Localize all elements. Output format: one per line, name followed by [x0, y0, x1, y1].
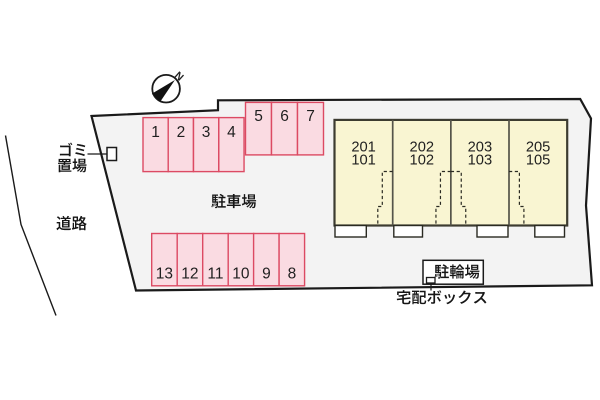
svg-text:105: 105 [526, 152, 551, 168]
svg-text:103: 103 [468, 152, 493, 168]
svg-text:102: 102 [410, 152, 435, 168]
svg-text:6: 6 [280, 108, 289, 125]
svg-text:10: 10 [232, 265, 250, 282]
svg-text:13: 13 [156, 265, 173, 282]
svg-text:2: 2 [177, 124, 186, 141]
svg-text:11: 11 [207, 265, 223, 282]
svg-text:9: 9 [262, 265, 271, 282]
svg-text:4: 4 [227, 124, 236, 141]
svg-text:7: 7 [306, 108, 315, 125]
svg-text:5: 5 [254, 108, 263, 125]
svg-text:8: 8 [288, 265, 297, 282]
svg-text:3: 3 [202, 124, 211, 141]
svg-text:12: 12 [181, 265, 198, 282]
svg-text:101: 101 [351, 152, 376, 168]
svg-text:1: 1 [151, 124, 160, 141]
